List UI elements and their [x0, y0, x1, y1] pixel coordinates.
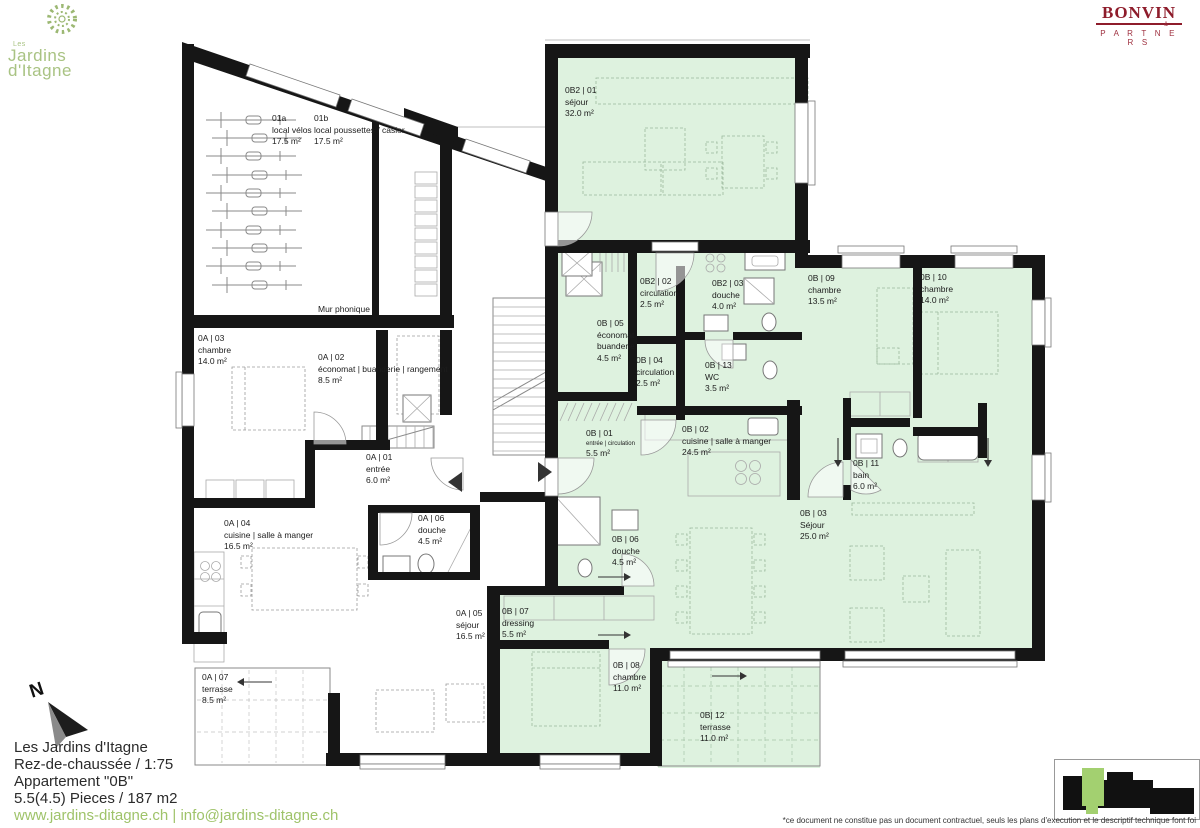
room-label-0a-01: 0A | 01entrée6.0 m² — [366, 452, 392, 487]
room-label-0b-10: 0B | 10chambre14.0 m² — [920, 272, 953, 307]
floor-scale: Rez-de-chaussée / 1:75 — [14, 756, 338, 773]
room-label-0b-12: 0B| 12terrasse11.0 m² — [700, 710, 731, 745]
room-label-0b2-02: 0B2 | 02circulation2.5 m² — [640, 276, 678, 311]
contact-links[interactable]: www.jardins-ditagne.ch | info@jardins-di… — [14, 807, 338, 824]
room-label-0b2-01: 0B2 | 01séjour32.0 m² — [565, 85, 597, 120]
room-label-01b: 01blocal poussettes / casier17.5 m² — [314, 113, 405, 148]
room-label-0b-07: 0B | 07dressing5.5 m² — [502, 606, 534, 641]
site-logo-line2: d'Itagne — [8, 63, 128, 78]
project-title: Les Jardins d'Itagne — [14, 739, 338, 756]
room-label-0b2-03: 0B2 | 03douche4.0 m² — [712, 278, 744, 313]
stairwell — [362, 127, 553, 455]
room-label-01a: 01alocal vélos17.5 m² — [272, 113, 312, 148]
room-label-0b-01: 0B | 01entrée | circulation5.5 m² — [586, 428, 635, 459]
room-label-0a-04: 0A | 04cuisine | salle à manger16.5 m² — [224, 518, 313, 553]
wall-note: Mur phonique — [318, 304, 370, 314]
floor-plan-drawing: .wall{fill:#161616;} .groom{fill:#def2df… — [0, 0, 1200, 828]
room-label-0a-05: 0A | 05séjour16.5 m² — [456, 608, 485, 643]
apartment-name: Appartement "0B" — [14, 773, 338, 790]
floor-plan-sheet: .wall{fill:#161616;} .groom{fill:#def2df… — [0, 0, 1200, 828]
room-label-0a-06: 0A | 06douche4.5 m² — [418, 513, 446, 548]
architect-name: BONVIN — [1096, 3, 1182, 25]
room-label-0b-11: 0B | 11bain6.0 m² — [853, 458, 879, 493]
room-label-0b-13: 0B | 13WC3.5 m² — [705, 360, 732, 395]
room-label-0b-06: 0B | 06douche4.5 m² — [612, 534, 640, 569]
room-label-0b-02: 0B | 02cuisine | salle à manger24.5 m² — [682, 424, 771, 459]
flower-icon — [8, 2, 128, 36]
room-label-0a-03: 0A | 03chambre14.0 m² — [198, 333, 231, 368]
room-label-0b-09: 0B | 09chambre13.5 m² — [808, 273, 841, 308]
room-label-0b-08: 0B | 08chambre11.0 m² — [613, 660, 646, 695]
apartment-size: 5.5(4.5) Pieces / 187 m2 — [14, 790, 338, 807]
key-plan-silhouette — [1055, 760, 1198, 818]
site-logo: Les Jardins d'Itagne — [8, 2, 128, 78]
disclaimer-text: *ce document ne constitue pas un documen… — [783, 816, 1196, 825]
room-label-0b-05: 0B | 05économatbuanderie4.5 m² — [597, 318, 635, 364]
room-label-0b-04: 0B | 04circulation2.5 m² — [636, 355, 674, 390]
title-block: Les Jardins d'Itagne Rez-de-chaussée / 1… — [14, 739, 338, 824]
architect-logo: BONVIN & P A R T N E R S — [1096, 3, 1182, 47]
key-plan — [1054, 759, 1200, 820]
locker-symbols — [415, 172, 437, 296]
room-label-0b-03: 0B | 03Séjour25.0 m² — [800, 508, 829, 543]
room-label-0a-07: 0A | 07terrasse8.5 m² — [202, 672, 233, 707]
architect-ampersand: & — [1096, 23, 1182, 27]
room-label-0a-02: 0A | 02économat | buanderie | rangement8… — [318, 352, 448, 387]
architect-sub: P A R T N E R S — [1096, 29, 1182, 47]
